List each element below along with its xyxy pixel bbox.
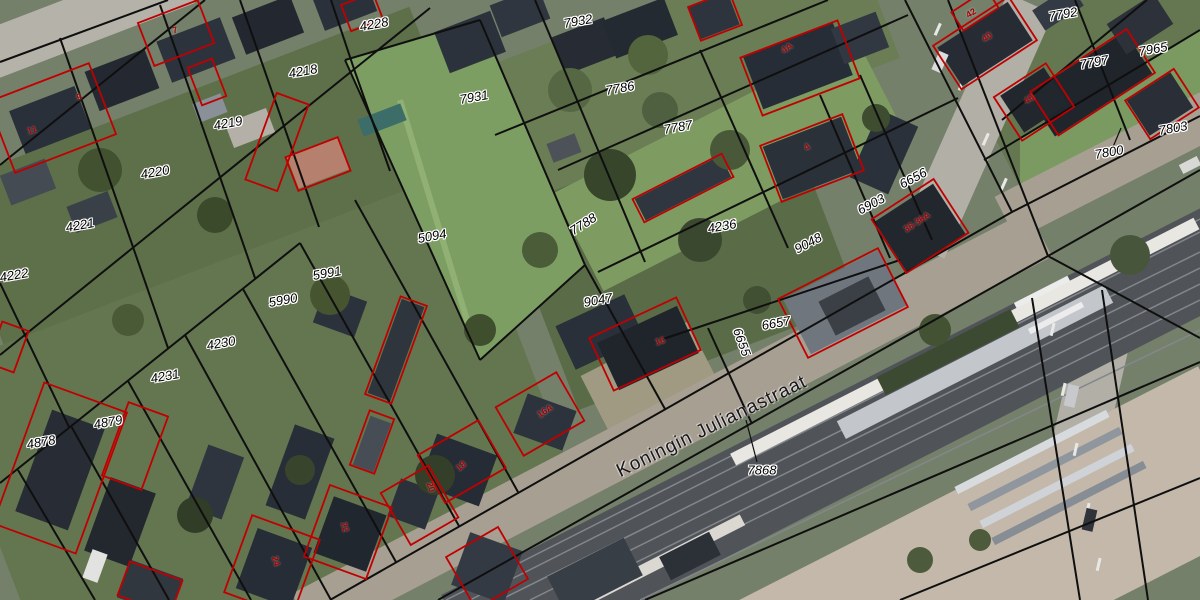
aerial-imagery-and-cadastral-overlay: [0, 0, 1200, 600]
aerial-cadastral-map[interactable]: 4228421842194220422142227932793177867787…: [0, 0, 1200, 600]
